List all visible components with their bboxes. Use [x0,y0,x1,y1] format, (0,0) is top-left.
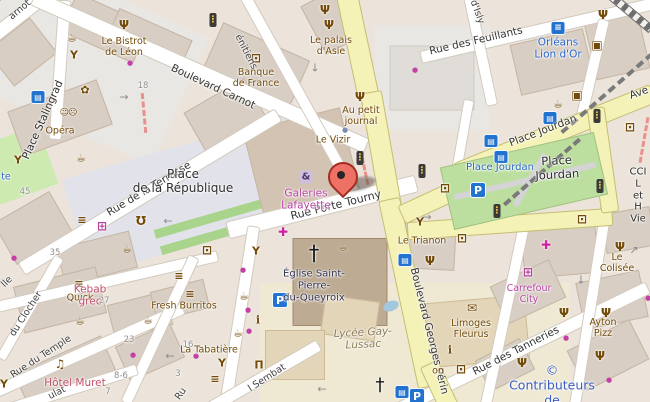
place-label-place-jourdan: Place Jourdan [534,153,579,182]
arrowR-icon: → [422,211,431,224]
trafficlight-icon: ⋮ [419,164,426,178]
trafficlight-icon: ⋮ [494,204,501,218]
poi-label-opera: Opéra [45,125,74,136]
house-number: 18 [138,81,149,91]
poi-label-le-trianon: Le Trianon [398,235,447,246]
poi-label-cci-partial: CCI L et H Vie [630,167,647,226]
poi-label-partial: on [432,365,444,376]
bank-icon: ⊡ [456,362,466,376]
construction-dashes [639,117,650,163]
fastfood-icon: ≡ [210,373,219,386]
fastfood-icon: ≡ [77,214,86,227]
dot-icon: ● [563,334,569,342]
cafe-icon: ☕ [143,314,153,327]
arrowL-icon: ← [163,215,172,228]
bus-icon: ▤ [484,134,499,148]
pin-center-dot [337,171,345,179]
hotel-icon: ≡ [551,21,566,35]
cafe-icon: ☕ [233,327,243,340]
poi-label-eglise-saint-pierre-du-queyroix: Église Saint- Pierre- du-Queyroix [283,268,345,303]
poi-label-hotel-muret: Hôtel Muret [44,377,106,389]
house-number: 3 [175,369,180,379]
dot-icon: ● [245,306,251,314]
cafe-icon: ☕ [553,98,563,111]
cart-icon: ⊞ [97,219,107,233]
fastfood-icon: ≡ [174,270,183,283]
street-label-partial: Ru [173,386,189,402]
arrowD-icon: ↓ [576,274,585,287]
parking-icon: P [409,388,425,402]
dot-icon: ● [412,66,418,74]
cafe-icon: ☕ [67,32,77,45]
poi-label-le-colisee: Le Colisée [600,252,634,274]
kiosk-icon: ▣ [571,88,582,102]
dot-icon: ● [606,376,612,384]
restaurant-icon: Ψ [119,18,129,32]
museum-icon: Π [254,359,263,372]
arrowL-icon: ← [165,350,174,363]
restaurant-icon: Ψ [598,8,608,22]
cafe-icon: ☕ [239,290,249,303]
cafe-icon: ☕ [122,243,132,256]
trafficlight-icon: ⋮ [210,13,217,27]
restaurant-icon: Ψ [324,18,334,32]
cafe-icon: ☕ [338,241,348,254]
trafficlight-icon: ⋮ [357,151,364,165]
poi-label-fresh-burritos: Fresh Burritos [151,300,217,311]
poi-label-carrefour-city: Carrefour City [507,283,552,305]
poi-label-orleans-lion-d-or: Orléans Lion d'Or [534,37,581,62]
poi-label-le-vizir: Le Vizir [316,134,350,145]
bag-icon: & [300,171,313,184]
post-icon: ✉ [467,301,477,315]
cafe-icon: ☕ [75,315,85,328]
bar-icon: Y [218,357,226,370]
house-number: 23 [124,335,135,345]
restaurant-icon: Ψ [559,306,569,320]
house-number: 35 [50,248,61,258]
pharmacy-icon: ✚ [541,238,551,252]
poi-label-galeries-lafayette: Galeries Lafayette [281,188,331,213]
info-icon: i [256,314,260,327]
arrowL-icon: ← [317,383,326,396]
arrowR-icon: → [119,91,128,104]
poi-label-partial: te [1,171,11,182]
arts-icon: ✿ [80,84,89,97]
poi-label-la-tabatiere: La Tabatière [180,344,238,355]
kiosk-icon: ▣ [591,38,602,52]
house-number: 45 [20,187,31,197]
church-icon: † [376,375,385,396]
bus-icon: ▤ [395,385,410,399]
bank-icon: ⊡ [440,181,450,195]
poi-label-ayton-pizz: Ayton Pizz [580,317,627,339]
bar-icon: Y [70,49,78,62]
poi-label-lycee-gay-lussac: Lycée Gay- Lussac [333,325,392,353]
restaurant-icon: Ψ [355,90,365,104]
trafficlight-icon: ⋮ [597,179,604,193]
poi-label-banque-de-france: Banque de France [233,67,279,89]
attribution[interactable]: © Contributeurs de OpenStreetMap [503,364,601,402]
info-icon: i [448,344,452,357]
building-lion-d-or [0,0,1,1]
cafe-icon: ☕ [76,152,86,165]
bank-icon: ⊡ [457,231,467,245]
arrowD-icon: ↓ [310,62,319,75]
dot-icon: ● [246,327,252,335]
dot-icon: ● [130,351,136,359]
restaurant-icon: Ψ [320,3,330,17]
bank-icon: ⊡ [202,243,212,257]
poi-label-le-bistrot-de-leon: Le Bistrot de Léon [101,36,146,58]
music-icon: ♫ [55,357,66,371]
house-number: 8-6 [114,371,128,381]
dot-icon: ● [11,254,17,262]
map-canvas[interactable]: ΨΨΨΨΨΨΨΨΨΨΨ☕☕☕☕☕☕☕☕☕YYYYYY≡≡≡≡≡⊡⊡⊡⊡⊡⊡⊡☺☹… [0,0,650,402]
restaurant-icon: Ψ [425,254,435,268]
place-label-place-de-la-republique: Place de la République [133,167,234,195]
trafficlight-icon: ⋮ [594,109,601,123]
bus-icon: ▤ [398,253,413,267]
parking-icon: P [470,182,486,198]
bar-icon: Y [252,245,260,258]
poi-label-kebab-grec: Kebab grec [74,284,107,309]
bank-icon: ⊡ [625,120,635,134]
poi-label-le-palais-d-asie: Le palais d'Asie [310,35,352,57]
poi-label-limoges-fleurus: Limoges Fleurus [451,318,491,340]
vase-icon: Ʊ [136,214,146,228]
bank-icon: ⊡ [577,212,587,226]
pharmacy-icon: ✚ [278,225,288,239]
poi-label-au-petit-journal: Au petit journal [342,105,380,127]
transit-stop-label-place-jourdan: Place Jourdan [466,162,534,174]
dot-icon: ● [127,59,133,67]
theatre-icon: ☺☹ [60,108,77,118]
restaurant-icon: Ψ [595,349,605,363]
dot-icon: ● [645,294,650,302]
church-icon: † [309,241,320,265]
fastfood-icon: ≡ [185,288,194,301]
bar-icon: Y [0,378,8,391]
dot-icon: ● [240,266,246,274]
cart-icon: ⊞ [523,265,533,279]
